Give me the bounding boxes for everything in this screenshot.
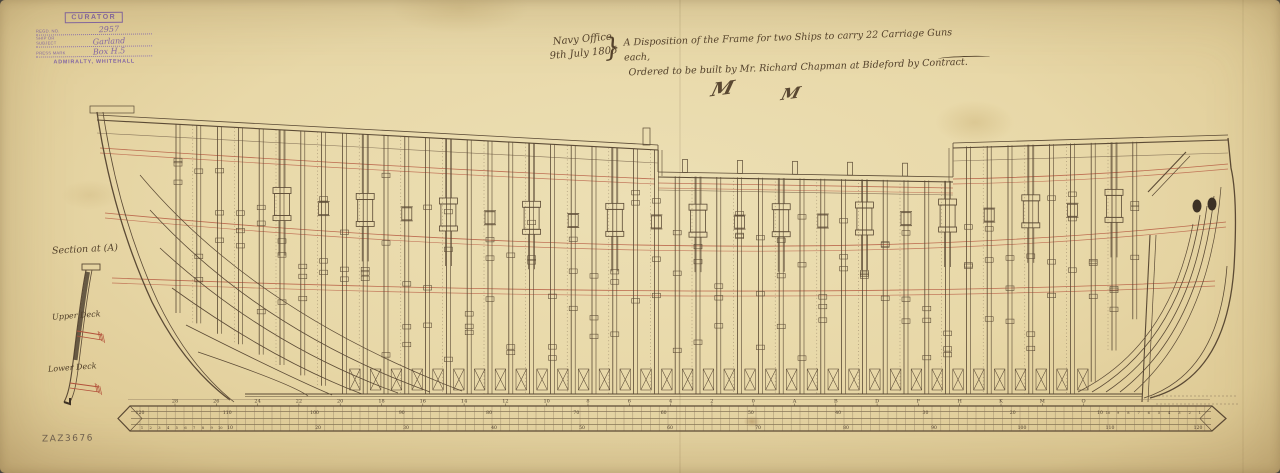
keel-scale-bottom-number: 100 — [1018, 425, 1027, 431]
keel-scale-bottom-number: 10 — [227, 425, 233, 431]
keel-scale-top-number: 60 — [661, 410, 667, 416]
stamp-title: CURATOR — [65, 12, 123, 24]
stamp-footer: ADMIRALTY, WHITEHALL — [36, 58, 152, 65]
stamp-field-label: Ship or Subject — [36, 36, 66, 46]
plan-sheet: 1201101009080706050403020101098765432110… — [0, 0, 1280, 473]
keel-fine-scale-number: 9 — [210, 426, 213, 430]
keel-fine-scale-number: 4 — [167, 426, 170, 430]
station-label: F — [917, 399, 921, 405]
keel-fine-scale-number: 10 — [1106, 411, 1111, 415]
keel-scale-top-number: 90 — [399, 410, 405, 416]
curator-stamp: CURATOR Regd. No. 2957 Ship or Subject G… — [36, 11, 153, 65]
stamp-field-label: Regd. No. — [36, 29, 66, 34]
stamp-field-value: 2957 — [66, 24, 152, 36]
keel-scale-top-number: 40 — [835, 410, 841, 416]
stamp-field-value: Box H.5 — [66, 46, 152, 58]
keel-scale-bottom-number: 90 — [931, 425, 937, 431]
keel-fine-scale-number: 2 — [150, 426, 152, 430]
archive-reference: ZAZ3676 — [42, 434, 94, 445]
keel-fine-scale-number: 10 — [218, 426, 223, 430]
inscription-brace: } — [602, 32, 622, 64]
keel-scale-bottom-number: 110 — [1106, 425, 1115, 431]
keel-fine-scale-number: 8 — [202, 426, 205, 430]
keel-scale-bottom-number: 50 — [579, 425, 585, 431]
keel-fine-scale-number: 1 — [141, 426, 143, 430]
keel-scale-top-number: 30 — [923, 410, 929, 416]
keel-fine-scale-number: 1 — [1199, 411, 1201, 415]
keel-scale-top-number: 10 — [1097, 410, 1103, 416]
keel-scale-top-number: 110 — [223, 410, 232, 416]
keel-scale-bottom-number: 30 — [403, 425, 409, 431]
station-label: H — [958, 399, 963, 405]
keel-fine-scale-number: 3 — [158, 426, 161, 430]
keel-scale-top-number: 120 — [136, 410, 145, 416]
keel-fine-scale-number: 7 — [193, 426, 196, 430]
keel-fine-scale-number: 5 — [176, 426, 179, 430]
keel-scale-bottom-number: 60 — [667, 425, 673, 431]
keel-scale-bottom-number: 70 — [755, 425, 761, 431]
keel-scale-top-number: 80 — [486, 410, 492, 416]
keel-scale-top-number: 20 — [1010, 410, 1016, 416]
keel-scale-top-number: 70 — [573, 410, 579, 416]
station-label: A — [792, 399, 797, 405]
keel-fine-scale-number: 2 — [1188, 411, 1190, 415]
keel-fine-scale-number: 6 — [184, 426, 187, 430]
keel-scale-top-number: 50 — [748, 410, 754, 416]
keel-scale-bottom-number: 120 — [1194, 425, 1203, 431]
keel-scale-bottom-number: 20 — [315, 425, 321, 431]
stamp-field-label: Press Mark — [36, 51, 66, 56]
keel-scale-top-number: 100 — [310, 410, 319, 416]
keel-scale-bottom-number: 40 — [491, 425, 497, 431]
keel-scale-bottom-number: 80 — [843, 425, 849, 431]
